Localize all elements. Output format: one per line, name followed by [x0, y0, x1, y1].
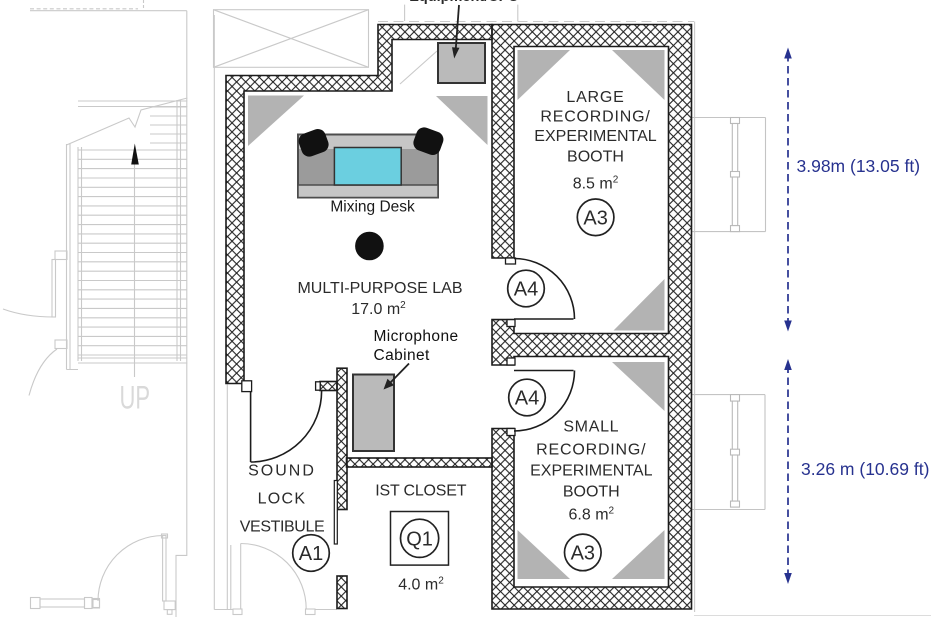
svg-text:LOCK: LOCK [258, 491, 307, 508]
svg-text:VESTIBULE: VESTIBULE [240, 519, 324, 536]
svg-text:Equipment/CPU: Equipment/CPU [409, 0, 519, 5]
svg-text:IST CLOSET: IST CLOSET [375, 483, 466, 500]
svg-text:4.0 m2: 4.0 m2 [398, 576, 444, 594]
svg-text:A4: A4 [515, 388, 539, 410]
svg-text:SOUND: SOUND [248, 463, 316, 480]
svg-text:MULTI-PURPOSE LAB: MULTI-PURPOSE LAB [297, 280, 462, 297]
svg-text:Mixing Desk: Mixing Desk [330, 199, 415, 216]
svg-text:Microphone: Microphone [374, 328, 459, 345]
svg-text:3.98m (13.05 ft): 3.98m (13.05 ft) [797, 156, 921, 176]
svg-text:UP: UP [120, 380, 151, 416]
svg-text:SMALL: SMALL [563, 419, 619, 436]
svg-text:EXPERIMENTAL: EXPERIMENTAL [530, 463, 653, 480]
svg-text:6.8 m2: 6.8 m2 [569, 506, 615, 524]
svg-text:EXPERIMENTAL: EXPERIMENTAL [534, 128, 657, 145]
svg-text:BOOTH: BOOTH [567, 148, 624, 165]
svg-text:RECORDING/: RECORDING/ [540, 108, 650, 125]
svg-text:3.26 m (10.69 ft): 3.26 m (10.69 ft) [801, 459, 929, 479]
svg-text:A3: A3 [583, 207, 607, 229]
svg-text:LARGE: LARGE [566, 89, 624, 106]
svg-text:17.0 m2: 17.0 m2 [351, 300, 406, 318]
svg-text:A4: A4 [514, 279, 538, 301]
svg-text:BOOTH: BOOTH [563, 484, 620, 501]
svg-text:Q1: Q1 [406, 528, 433, 550]
svg-text:RECORDING/: RECORDING/ [536, 441, 646, 458]
svg-text:Cabinet: Cabinet [374, 347, 431, 364]
svg-text:8.5 m2: 8.5 m2 [573, 175, 619, 193]
svg-text:A1: A1 [299, 543, 323, 565]
svg-text:A3: A3 [571, 542, 595, 564]
